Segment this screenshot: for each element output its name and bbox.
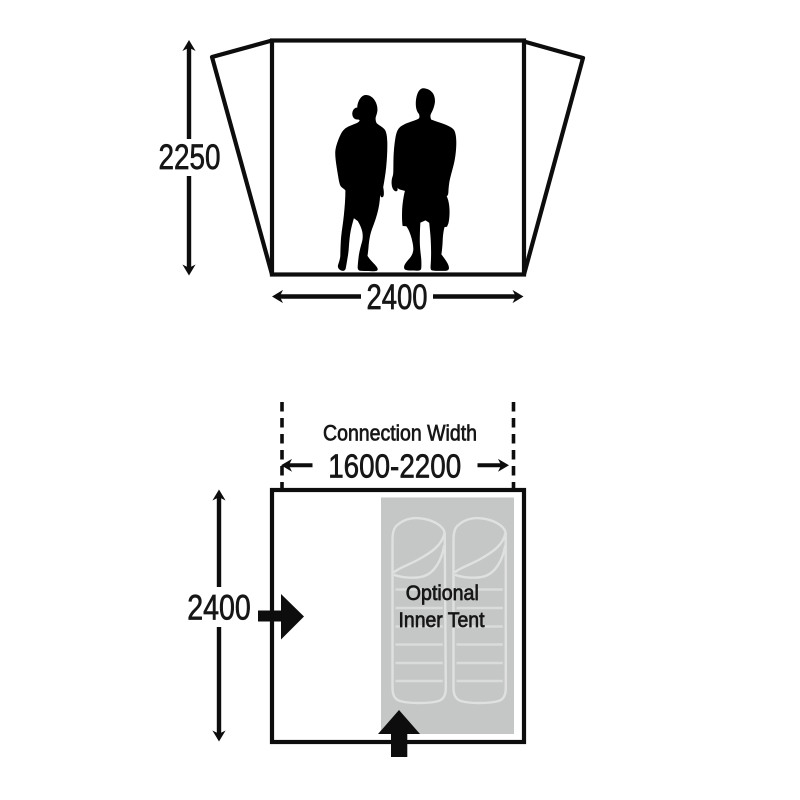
svg-text:2250: 2250 (159, 138, 221, 177)
svg-text:Connection Width: Connection Width (323, 421, 477, 446)
svg-text:2400: 2400 (367, 278, 428, 317)
svg-text:Optional: Optional (406, 582, 479, 605)
svg-text:Inner Tent: Inner Tent (399, 609, 485, 632)
svg-text:2400: 2400 (187, 588, 251, 628)
svg-text:1600-2200: 1600-2200 (328, 449, 461, 486)
